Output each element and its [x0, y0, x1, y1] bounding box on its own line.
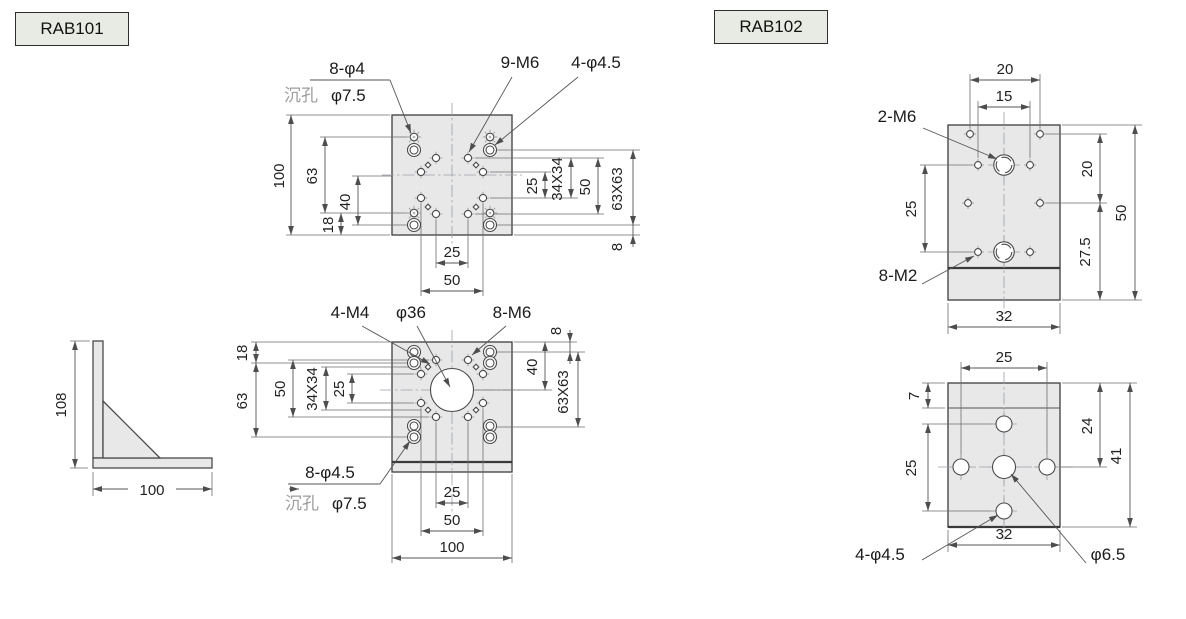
dim-100-bottom-front: 100	[439, 539, 464, 556]
callout-9-m6: 9-M6	[501, 53, 540, 72]
dim-24: 24	[1079, 418, 1096, 435]
dim-40-front: 40	[524, 359, 541, 376]
bracket-gusset	[103, 401, 160, 458]
dim-25-bottom: 25	[444, 244, 461, 261]
dim-63x63-front: 63X63	[555, 370, 572, 413]
dim-100: 100	[271, 163, 288, 188]
dim-20-right: 20	[1079, 161, 1096, 178]
dim-40: 40	[337, 194, 354, 211]
rab101-front-view: 4-M4 φ36 8-M6 8-φ4.5 沉孔 φ7.5 18 63 50 34…	[234, 303, 585, 563]
callout-counterbore-prefix-front: 沉孔	[285, 494, 319, 513]
callout-4-phi45: 4-φ4.5	[571, 53, 621, 72]
rab101-side-view: 108 100	[53, 341, 299, 499]
callout-counterbore-value-front: φ7.5	[332, 494, 367, 513]
dim-15: 15	[996, 88, 1013, 105]
dim-20-top: 20	[997, 61, 1014, 78]
dim-32-front: 32	[996, 526, 1013, 543]
technical-drawing-page: RAB101 RAB102	[0, 0, 1186, 619]
rab101-top-view: 8-φ4 沉孔 φ7.5 9-M6 4-φ4.5 100 63 18 40 25…	[271, 53, 640, 296]
dim-32-top: 32	[996, 308, 1013, 325]
dim-27-5: 27.5	[1077, 237, 1094, 266]
dim-63-front: 63	[234, 393, 251, 410]
dim-8: 8	[609, 243, 626, 251]
dim-25-left-front-102: 25	[903, 460, 920, 477]
callout-8-m6: 8-M6	[493, 303, 532, 322]
dim-50-bottom-front: 50	[444, 512, 461, 529]
dim-41: 41	[1108, 448, 1125, 465]
dim-50-102: 50	[1113, 205, 1130, 222]
dim-108: 108	[53, 392, 70, 417]
dim-34x34-front: 34X34	[304, 367, 321, 410]
dim-25-top-102: 25	[996, 349, 1013, 366]
dim-8-front: 8	[548, 327, 565, 335]
dim-18: 18	[320, 217, 337, 234]
callout-8-m2: 8-M2	[879, 266, 918, 285]
callout-4-m4: 4-M4	[331, 303, 370, 322]
callout-8-phi4: 8-φ4	[329, 59, 365, 78]
callout-counterbore-prefix: 沉孔	[284, 86, 318, 105]
dim-25-front: 25	[331, 381, 348, 398]
rab102-top-view: 2-M6 8-M2 20 15 25 20 27.5 50 32	[878, 61, 1142, 334]
dim-18-front: 18	[234, 345, 251, 362]
dim-63x63: 63X63	[609, 167, 626, 210]
dim-50-right: 50	[577, 179, 594, 196]
drawing-canvas: 8-φ4 沉孔 φ7.5 9-M6 4-φ4.5 100 63 18 40 25…	[0, 0, 1186, 619]
bracket-vertical-wall	[93, 341, 103, 458]
dim-100-side: 100	[139, 482, 164, 499]
center-bore-phi36	[431, 369, 474, 412]
callout-4-phi45-102: 4-φ4.5	[855, 545, 905, 564]
dim-25-left-102: 25	[903, 201, 920, 218]
rab102-front-view: 4-φ4.5 φ6.5 25 7 25 24 41 32	[855, 349, 1137, 564]
callout-2-m6: 2-M6	[878, 107, 917, 126]
dim-7: 7	[906, 392, 923, 400]
callout-phi36: φ36	[396, 303, 426, 322]
dim-34x34: 34X34	[549, 157, 566, 200]
dim-63: 63	[304, 168, 321, 185]
callout-phi65: φ6.5	[1091, 545, 1126, 564]
dim-50-front: 50	[272, 381, 289, 398]
callout-counterbore-value: φ7.5	[331, 86, 366, 105]
dim-25-right: 25	[524, 178, 541, 195]
dim-25-bottom-front: 25	[444, 484, 461, 501]
dim-50-bottom: 50	[444, 272, 461, 289]
bracket-base	[93, 458, 212, 468]
callout-8-phi45: 8-φ4.5	[305, 463, 355, 482]
